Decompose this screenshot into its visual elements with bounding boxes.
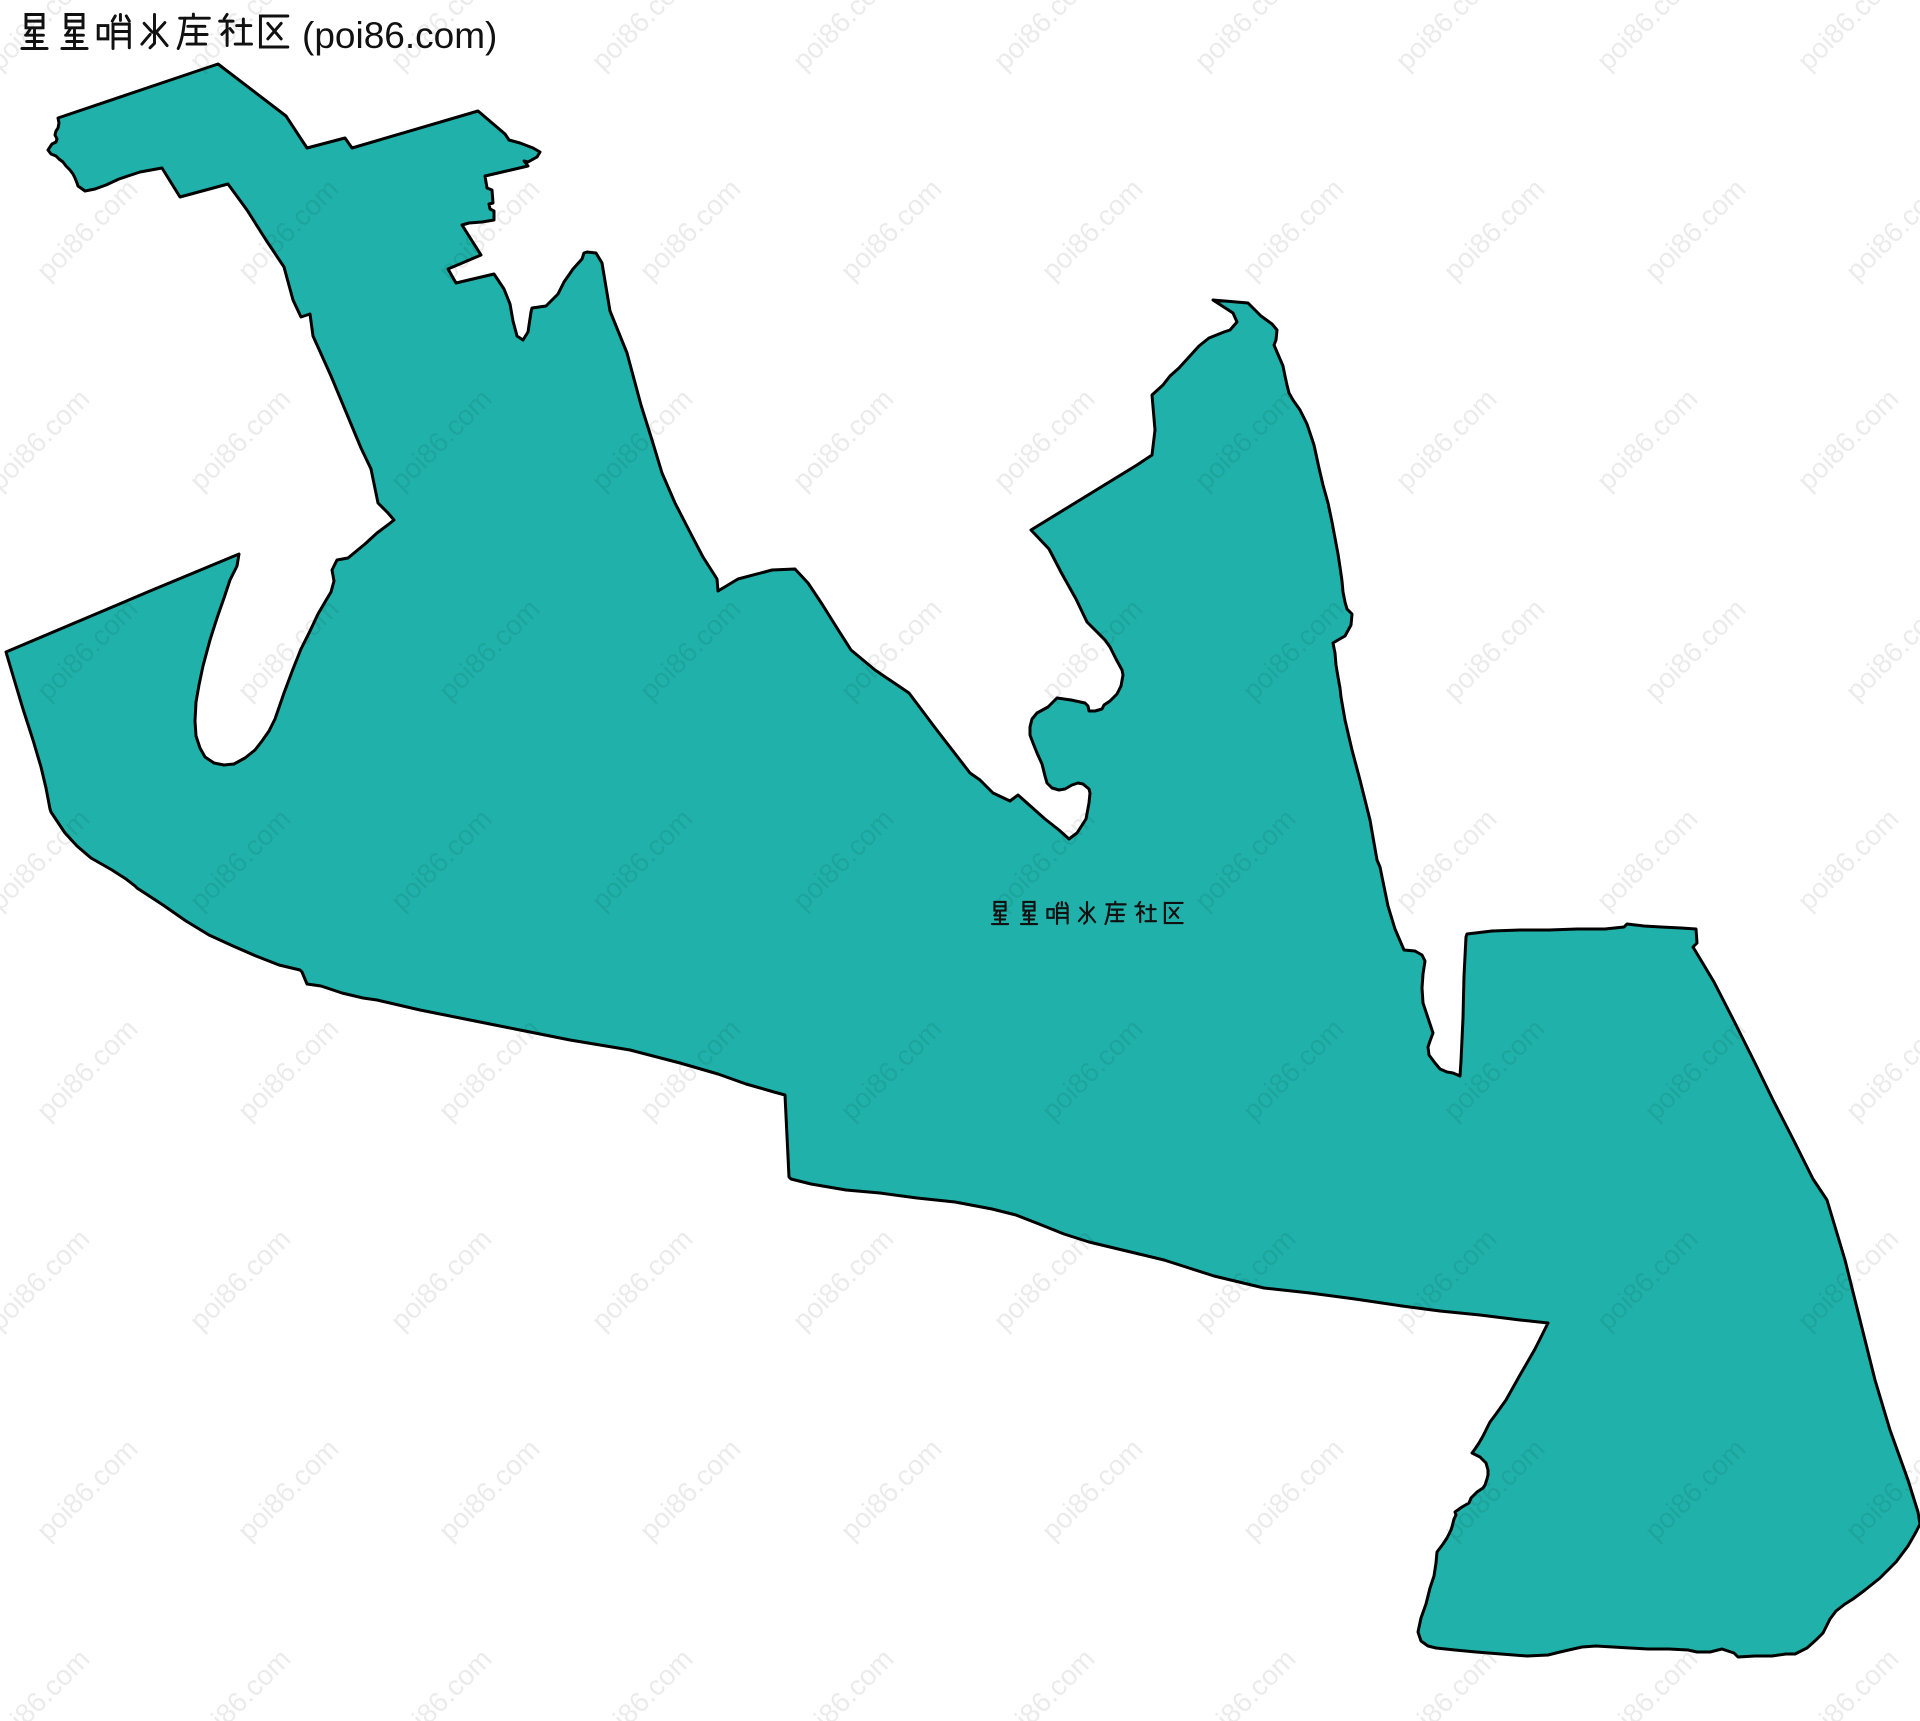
svg-text:(poi86.com): (poi86.com) — [302, 15, 497, 56]
